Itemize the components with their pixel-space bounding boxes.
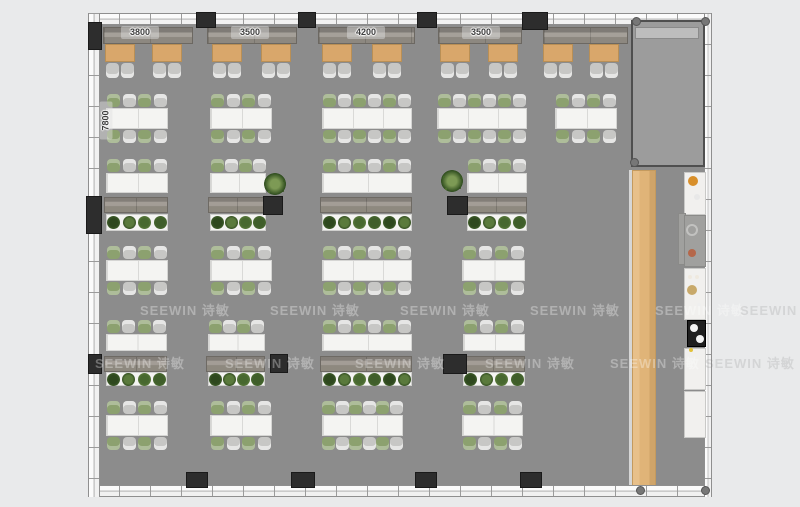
kitchen-fixture <box>688 176 698 186</box>
dining-table <box>106 334 167 351</box>
pillar <box>86 196 102 234</box>
kitchen-fixture <box>688 249 696 257</box>
chair <box>258 246 271 259</box>
chair <box>251 320 264 333</box>
chair <box>138 320 151 333</box>
chair <box>504 63 517 78</box>
chair <box>228 63 241 78</box>
chair <box>353 159 366 172</box>
chair <box>383 320 396 333</box>
dining-table <box>208 334 265 351</box>
planter-plant <box>495 373 508 386</box>
dining-table <box>322 173 412 193</box>
kitchen-fixture <box>695 275 699 279</box>
chair <box>123 159 136 172</box>
chair <box>123 282 136 295</box>
booth-table <box>261 44 291 62</box>
chair <box>138 159 151 172</box>
chair <box>242 130 255 143</box>
chair <box>277 63 290 78</box>
chair <box>258 437 271 450</box>
pillar <box>186 472 208 488</box>
chair <box>223 320 236 333</box>
chair <box>383 159 396 172</box>
chair <box>383 246 396 259</box>
chair <box>376 401 389 414</box>
chair <box>323 159 336 172</box>
pillar <box>417 12 437 28</box>
chair <box>368 246 381 259</box>
kitchen-fixture <box>690 324 698 332</box>
chair <box>376 437 389 450</box>
chair <box>556 94 569 107</box>
chair <box>587 94 600 107</box>
dimension-label: 3500 <box>231 26 269 39</box>
chair <box>323 320 336 333</box>
potted-plant <box>264 173 286 195</box>
chair <box>463 437 476 450</box>
chair <box>262 63 275 78</box>
chair <box>463 246 476 259</box>
chair <box>211 437 224 450</box>
planter-plant <box>480 373 493 386</box>
watermark: SEEWIN 诗敏 <box>740 300 800 319</box>
chair <box>483 130 496 143</box>
planter-plant <box>468 216 481 229</box>
chair <box>123 246 136 259</box>
chair <box>498 159 511 172</box>
chair <box>478 401 491 414</box>
chair <box>398 159 411 172</box>
watermark: SEEWIN 诗敏 <box>355 353 445 372</box>
chair <box>227 130 240 143</box>
planter-plant <box>338 373 351 386</box>
chair <box>494 437 507 450</box>
kitchen-fixture <box>696 335 704 343</box>
dining-table <box>210 415 272 436</box>
chair <box>544 63 557 78</box>
chair <box>468 94 481 107</box>
booth-table <box>372 44 402 62</box>
booth-table <box>105 44 135 62</box>
dining-table <box>210 108 272 129</box>
chair <box>123 401 136 414</box>
chair <box>323 246 336 259</box>
chair <box>495 282 508 295</box>
chair <box>398 94 411 107</box>
dimension-label: 3800 <box>121 26 159 39</box>
chair <box>168 63 181 78</box>
kitchen-fixture <box>687 285 697 295</box>
chair <box>154 282 167 295</box>
dining-table <box>210 173 266 193</box>
planter-plant <box>211 216 224 229</box>
planter-plant <box>398 216 411 229</box>
column-marker <box>632 17 641 26</box>
chair <box>107 401 120 414</box>
planter-plant <box>398 373 411 386</box>
planter-plant <box>383 373 396 386</box>
chair <box>398 282 411 295</box>
planter-plant <box>483 216 496 229</box>
chair <box>336 401 349 414</box>
chair <box>480 320 493 333</box>
bench-seat <box>320 197 412 213</box>
chair <box>453 130 466 143</box>
chair <box>138 401 151 414</box>
chair <box>368 130 381 143</box>
chair <box>106 63 119 78</box>
potted-plant <box>441 170 463 192</box>
chair <box>107 159 120 172</box>
chair <box>363 401 376 414</box>
chair <box>349 401 362 414</box>
watermark: SEEWIN 诗敏 <box>270 300 360 319</box>
chair <box>559 63 572 78</box>
chair <box>398 130 411 143</box>
planter-plant <box>353 216 366 229</box>
dining-table <box>106 260 168 281</box>
chair <box>154 401 167 414</box>
chair <box>373 63 386 78</box>
chair <box>498 130 511 143</box>
chair <box>511 282 524 295</box>
chair <box>495 246 508 259</box>
planter-plant <box>338 216 351 229</box>
chair <box>495 320 508 333</box>
planter-plant <box>383 216 396 229</box>
chair <box>368 94 381 107</box>
chair <box>463 282 476 295</box>
chair <box>464 320 477 333</box>
chair <box>349 437 362 450</box>
chair <box>489 63 502 78</box>
chair <box>368 320 381 333</box>
booth-table <box>152 44 182 62</box>
chair <box>456 63 469 78</box>
pillar <box>298 12 316 28</box>
chair <box>154 159 167 172</box>
chair <box>123 437 136 450</box>
booth-table <box>488 44 518 62</box>
booth-table <box>589 44 619 62</box>
chair <box>154 437 167 450</box>
chair <box>211 159 224 172</box>
chair <box>138 130 151 143</box>
booth-table <box>440 44 470 62</box>
chair <box>323 63 336 78</box>
chair <box>138 246 151 259</box>
dining-table <box>467 173 527 193</box>
chair <box>572 94 585 107</box>
chair <box>603 130 616 143</box>
column-marker <box>701 486 710 495</box>
booth-table <box>543 44 573 62</box>
watermark: SEEWIN 诗敏 <box>655 300 745 319</box>
wall-top-windows <box>88 13 712 25</box>
chair <box>468 130 481 143</box>
floor-plan-image: 38003500420035007800SEEWIN 诗敏SEEWIN 诗敏SE… <box>0 0 800 507</box>
chair <box>107 282 120 295</box>
dining-table <box>106 415 168 436</box>
chair <box>138 437 151 450</box>
chair <box>468 159 481 172</box>
kitchen-fixture <box>689 348 693 352</box>
kitchen-fixture <box>686 224 698 236</box>
wall-bottom-windows <box>88 485 712 497</box>
planter-plant <box>154 216 167 229</box>
chair <box>239 159 252 172</box>
planter-plant <box>323 373 336 386</box>
chair <box>237 320 250 333</box>
chair <box>153 320 166 333</box>
chair <box>227 282 240 295</box>
column-marker <box>701 17 710 26</box>
chair <box>453 94 466 107</box>
chair <box>323 130 336 143</box>
pillar <box>443 354 467 374</box>
chair <box>258 94 271 107</box>
dining-table <box>462 415 523 436</box>
planter-plant <box>464 373 477 386</box>
chair <box>478 437 491 450</box>
dining-table <box>322 108 412 129</box>
meeting-room <box>631 20 705 167</box>
chair <box>398 246 411 259</box>
kitchen-counter <box>684 215 706 267</box>
planter-plant <box>123 216 136 229</box>
pillar <box>196 12 216 28</box>
dining-table <box>437 108 527 129</box>
watermark: SEEWIN 诗敏 <box>485 353 575 372</box>
watermark: SEEWIN 诗敏 <box>530 300 620 319</box>
planter-plant <box>107 373 120 386</box>
chair <box>368 282 381 295</box>
planter-plant <box>251 373 264 386</box>
dining-table <box>322 415 403 436</box>
chair <box>154 130 167 143</box>
chair <box>123 130 136 143</box>
chair <box>590 63 603 78</box>
chair <box>605 63 618 78</box>
chair <box>438 130 451 143</box>
chair <box>441 63 454 78</box>
planter-plant <box>209 373 222 386</box>
dining-table <box>322 260 412 281</box>
planter-plant <box>138 373 151 386</box>
pillar <box>522 12 548 30</box>
chair <box>353 130 366 143</box>
chair <box>479 246 492 259</box>
chair <box>383 94 396 107</box>
meeting-room-cabinet <box>635 27 699 39</box>
wall-bench <box>543 27 628 44</box>
dining-table <box>106 108 168 129</box>
bench-seat <box>104 197 168 213</box>
pillar <box>291 472 315 488</box>
pillar <box>415 472 437 488</box>
chair <box>338 320 351 333</box>
chair <box>390 401 403 414</box>
chair <box>138 94 151 107</box>
chair <box>494 401 507 414</box>
bench-seat <box>465 197 527 213</box>
chair <box>509 401 522 414</box>
dimension-label: 4200 <box>347 26 385 39</box>
chair <box>209 320 222 333</box>
chair <box>253 159 266 172</box>
chair <box>154 246 167 259</box>
chair <box>587 130 600 143</box>
chair <box>509 437 522 450</box>
chair <box>383 130 396 143</box>
bench-seat <box>208 197 266 213</box>
chair <box>122 320 135 333</box>
chair <box>513 159 526 172</box>
booth-table <box>322 44 352 62</box>
dining-table <box>462 260 525 281</box>
chair <box>211 282 224 295</box>
chair <box>572 130 585 143</box>
column-marker <box>630 158 639 167</box>
chair <box>123 94 136 107</box>
chair <box>383 282 396 295</box>
chair <box>353 320 366 333</box>
chair <box>390 437 403 450</box>
chair <box>338 130 351 143</box>
chair <box>338 63 351 78</box>
chair <box>463 401 476 414</box>
chair <box>213 63 226 78</box>
watermark: SEEWIN 诗敏 <box>610 353 700 372</box>
chair <box>338 159 351 172</box>
planter-plant <box>239 216 252 229</box>
planter-plant <box>237 373 250 386</box>
chair <box>388 63 401 78</box>
watermark: SEEWIN 诗敏 <box>140 300 230 319</box>
chair <box>322 401 335 414</box>
chair <box>242 282 255 295</box>
chair <box>438 94 451 107</box>
chair <box>225 159 238 172</box>
bar-counter <box>632 170 656 487</box>
chair <box>479 282 492 295</box>
chair <box>242 94 255 107</box>
chair <box>603 94 616 107</box>
planter-plant <box>498 216 511 229</box>
planter-plant <box>513 216 526 229</box>
booth-table <box>212 44 242 62</box>
wall-left-windows <box>88 13 100 497</box>
watermark: SEEWIN 诗敏 <box>705 353 795 372</box>
chair <box>227 401 240 414</box>
chair <box>154 94 167 107</box>
chair <box>398 320 411 333</box>
chair <box>107 246 120 259</box>
chair <box>322 437 335 450</box>
chair <box>211 246 224 259</box>
kitchen-fixture <box>694 194 700 200</box>
dining-table <box>106 173 168 193</box>
planter-plant <box>368 216 381 229</box>
chair <box>511 320 524 333</box>
chair <box>483 94 496 107</box>
chair <box>258 130 271 143</box>
chair <box>227 94 240 107</box>
planter-plant <box>223 373 236 386</box>
chair <box>258 401 271 414</box>
chair <box>121 63 134 78</box>
kitchen-fixture <box>688 275 692 279</box>
chair <box>211 130 224 143</box>
planter-plant <box>323 216 336 229</box>
chair <box>513 94 526 107</box>
chair <box>338 282 351 295</box>
chair <box>338 94 351 107</box>
chair <box>353 246 366 259</box>
chair <box>242 401 255 414</box>
chair <box>107 320 120 333</box>
chair <box>153 63 166 78</box>
planter-plant <box>122 373 135 386</box>
column-marker <box>636 486 645 495</box>
pillar <box>88 22 102 50</box>
floor-plan: 38003500420035007800SEEWIN 诗敏SEEWIN 诗敏SE… <box>0 0 800 507</box>
dining-table <box>463 334 525 351</box>
chair <box>338 246 351 259</box>
pillar <box>263 196 283 215</box>
chair <box>227 246 240 259</box>
chair <box>556 130 569 143</box>
dining-table <box>555 108 617 129</box>
pillar <box>520 472 542 488</box>
chair <box>513 130 526 143</box>
chair <box>353 282 366 295</box>
chair <box>323 282 336 295</box>
chair <box>211 94 224 107</box>
chair <box>323 94 336 107</box>
chair <box>107 437 120 450</box>
planter-plant <box>253 216 266 229</box>
kitchen-counter <box>684 391 706 438</box>
dimension-label: 3500 <box>462 26 500 39</box>
chair <box>138 282 151 295</box>
planter-plant <box>153 373 166 386</box>
chair <box>483 159 496 172</box>
chair <box>363 437 376 450</box>
chair <box>511 246 524 259</box>
pillar <box>447 196 468 215</box>
chair <box>368 159 381 172</box>
planter-plant <box>353 373 366 386</box>
planter-plant <box>368 373 381 386</box>
chair <box>336 437 349 450</box>
chair <box>242 246 255 259</box>
chair <box>258 282 271 295</box>
chair <box>242 437 255 450</box>
dining-table <box>322 334 412 351</box>
watermark: SEEWIN 诗敏 <box>225 353 315 372</box>
chair <box>211 401 224 414</box>
chair <box>227 437 240 450</box>
dining-table <box>210 260 272 281</box>
planter-plant <box>511 373 524 386</box>
watermark: SEEWIN 诗敏 <box>400 300 490 319</box>
dimension-label: 7800 <box>100 102 113 140</box>
chair <box>498 94 511 107</box>
chair <box>353 94 366 107</box>
planter-plant <box>225 216 238 229</box>
